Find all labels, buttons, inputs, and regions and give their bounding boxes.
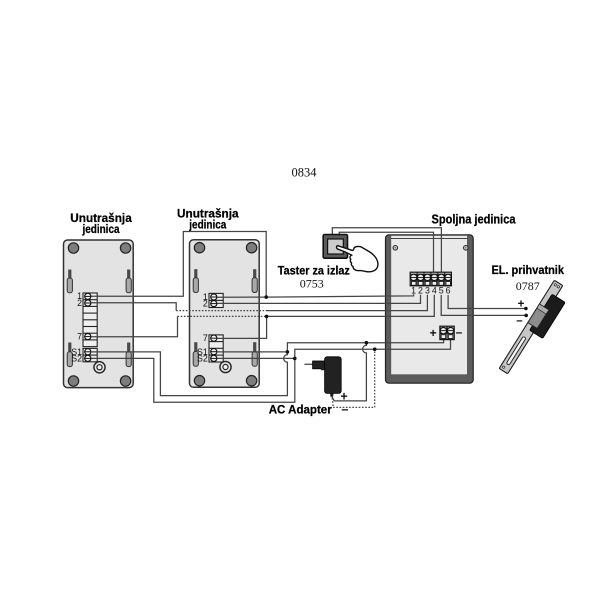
svg-text:S2: S2 — [71, 353, 82, 363]
svg-text:2: 2 — [77, 298, 82, 308]
svg-text:3: 3 — [425, 286, 430, 296]
svg-text:0834: 0834 — [292, 166, 318, 180]
svg-text:–: – — [516, 315, 523, 327]
svg-text:jedinica: jedinica — [82, 222, 120, 236]
svg-text:Taster za izlaz: Taster za izlaz — [278, 264, 350, 278]
svg-text:S2: S2 — [197, 353, 208, 363]
svg-text:0787: 0787 — [516, 279, 540, 293]
svg-text:7: 7 — [203, 333, 208, 343]
svg-text:6: 6 — [446, 286, 451, 296]
svg-text:0753: 0753 — [300, 277, 324, 291]
svg-text:7: 7 — [77, 332, 82, 342]
svg-text:+: + — [518, 299, 525, 311]
svg-text:4: 4 — [432, 286, 437, 296]
svg-text:5: 5 — [439, 286, 444, 296]
svg-text:AC Adapter: AC Adapter — [269, 402, 332, 416]
svg-text:–: – — [341, 403, 348, 417]
svg-text:Spoljna jedinica: Spoljna jedinica — [432, 212, 517, 226]
svg-text:+: + — [430, 326, 437, 340]
svg-text:1: 1 — [411, 286, 416, 296]
svg-text:jedinica: jedinica — [188, 218, 226, 232]
svg-text:2: 2 — [203, 299, 208, 309]
svg-text:2: 2 — [418, 286, 423, 296]
svg-text:+: + — [340, 389, 347, 403]
svg-text:EL. prihvatnik: EL. prihvatnik — [491, 263, 564, 277]
svg-text:–: – — [456, 325, 463, 339]
